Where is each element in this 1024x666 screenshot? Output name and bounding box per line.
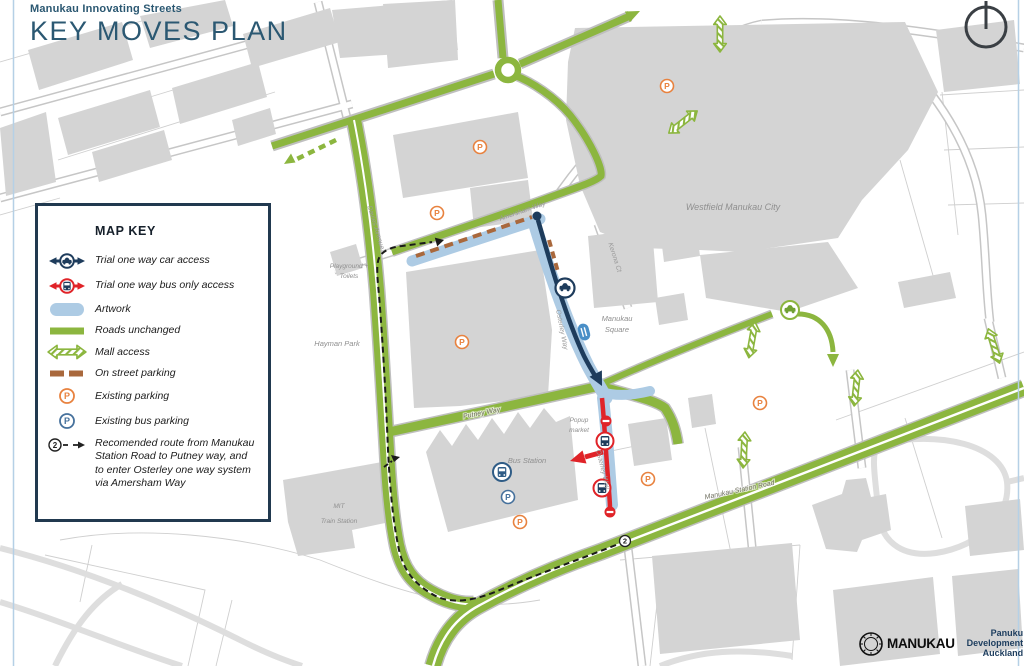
label-playground: Playground +: [330, 263, 369, 270]
roads-unchanged-swatch: [46, 326, 88, 336]
svg-text:P: P: [664, 81, 670, 91]
map-key-panel: MAP KEY Trial one way car access: [35, 203, 271, 522]
no-entry-icon: [601, 416, 612, 427]
svg-text:Toilets: Toilets: [340, 273, 359, 280]
svg-text:Square: Square: [605, 325, 629, 334]
label-westfield: Westfield Manukau City: [686, 202, 781, 212]
legend-item-car-access: Trial one way car access: [46, 252, 258, 270]
parking-icon: P: [46, 387, 88, 405]
svg-text:P: P: [434, 208, 440, 218]
svg-text:P: P: [477, 142, 483, 152]
legend-item-artwork: Artwork: [46, 302, 258, 317]
parking-icon: P: [661, 80, 674, 93]
legend-item-existing-parking: P Existing parking: [46, 387, 258, 405]
one-way-car-icon: [556, 279, 575, 298]
one-way-bus-icon: [46, 277, 88, 295]
legend-item-existing-bus-parking: P Existing bus parking: [46, 412, 258, 430]
mall-access-arrow-icon: [46, 344, 88, 360]
manukau-stamp-icon: [858, 631, 884, 657]
footer-logos: MANUKAU Panuku Development Auckland: [858, 629, 1024, 659]
parking-icon: P: [431, 207, 444, 220]
legend-item-bus-access: Trial one way bus only access: [46, 277, 258, 295]
legend-item-recommended-route: 2 Recomended route from Manukau Station …: [46, 437, 258, 490]
page-title: KEY MOVES PLAN: [30, 16, 288, 47]
parking-icon: P: [754, 397, 767, 410]
map-key-title: MAP KEY: [95, 224, 258, 238]
svg-text:Train Station: Train Station: [321, 518, 358, 525]
header: Manukau Innovating Streets KEY MOVES PLA…: [30, 3, 288, 47]
one-way-car-icon: [46, 252, 88, 270]
parking-icon: P: [514, 516, 527, 529]
label-manukau-square: Manukau: [602, 314, 634, 323]
label-mit: MIT: [333, 503, 345, 510]
svg-text:P: P: [505, 492, 511, 502]
route-number: 2: [623, 537, 627, 546]
svg-text:market: market: [569, 427, 590, 434]
bus-only-icon: [597, 433, 614, 450]
recommended-route-icon: 2: [46, 437, 88, 453]
roundabout: [498, 60, 518, 80]
roundabout-car-icon: [781, 301, 799, 319]
legend-item-roads-unchanged: Roads unchanged: [46, 324, 258, 337]
route-start-dot: [533, 212, 542, 221]
bus-parking-icon: P: [46, 412, 88, 430]
svg-text:P: P: [64, 416, 70, 426]
parking-icon: P: [456, 336, 469, 349]
legend-item-onstreet-parking: On street parking: [46, 367, 258, 380]
svg-text:P: P: [64, 391, 70, 401]
parking-icon: P: [642, 473, 655, 486]
parking-icon: P: [474, 141, 487, 154]
route-number-marker: 2: [620, 536, 631, 547]
no-entry-icon: [605, 507, 616, 518]
legend-item-mall-access: Mall access: [46, 344, 258, 360]
label-popup-market: Popup: [570, 417, 589, 424]
svg-text:2: 2: [53, 441, 58, 450]
label-hayman-park: Hayman Park: [314, 339, 361, 348]
svg-text:P: P: [757, 398, 763, 408]
artwork-swatch: [46, 302, 88, 317]
bus-station-icon: [493, 463, 511, 481]
svg-text:P: P: [645, 474, 651, 484]
manukau-logo: MANUKAU: [858, 631, 955, 657]
page-subtitle: Manukau Innovating Streets: [30, 3, 288, 15]
label-bus-station: Bus Station: [508, 456, 546, 465]
onstreet-parking-swatch: [46, 369, 88, 378]
svg-text:P: P: [459, 337, 465, 347]
panuku-logo: Panuku Development Auckland: [967, 629, 1024, 659]
bus-parking-icon: P: [502, 491, 515, 504]
svg-text:P: P: [517, 517, 523, 527]
